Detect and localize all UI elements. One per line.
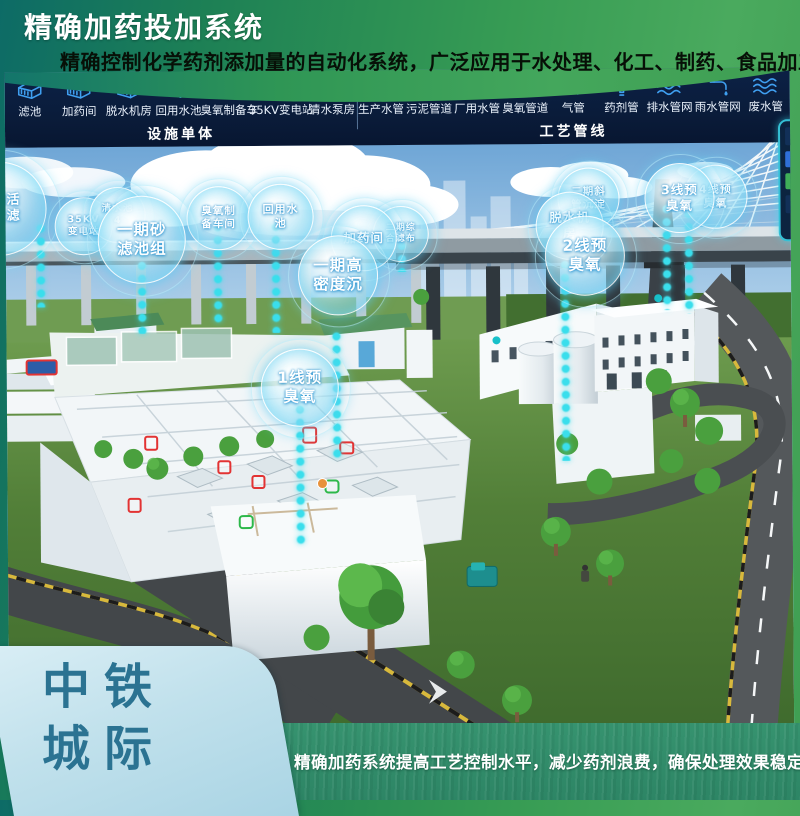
mini-panel-slot	[785, 195, 794, 213]
bubble-label-line: 一期高	[313, 256, 363, 276]
bubble-label-line: 一期活	[5, 192, 21, 209]
bubble-label-line: 备车间	[201, 218, 236, 231]
bubble-line1-pre-ozone[interactable]: 1线预臭氧	[261, 348, 340, 427]
bubble-label-line: 池	[275, 217, 287, 231]
dosing-system-page: { "header": { "title": "精确加药投加系统", "subt…	[0, 0, 800, 800]
bubble-label-line: 臭氧	[283, 388, 316, 408]
bubble-label-line: 臭氧	[666, 198, 693, 214]
bubble-label-line: 回用水	[263, 203, 299, 217]
bubble-label-line: 3线预	[661, 182, 698, 198]
tagline-text: 精确加药系统提高工艺控制水平，减少药剂浪费，确保处理效果稳定	[280, 723, 800, 773]
bubble-label-line: 滤池组	[117, 240, 167, 260]
bubble-line3-pre-ozone[interactable]: 3线预臭氧	[644, 163, 714, 233]
bubble-label-line: 臭氧制	[201, 205, 236, 218]
tagline-banner: 精确加药系统提高工艺控制水平，减少药剂浪费，确保处理效果稳定	[280, 723, 800, 800]
bubble-phase1-high-density-sedimentation[interactable]: 一期高密度沉	[298, 235, 379, 316]
brand-name: 中铁 城际	[42, 656, 166, 780]
brand-line-2: 城际	[42, 718, 166, 780]
bubble-label-line: 密度沉	[313, 275, 363, 295]
bubble-label-line: 性炭滤	[5, 209, 21, 226]
bubble-label-line: 一期砂	[117, 220, 167, 240]
page-title: 精确加药投加系统	[24, 6, 264, 46]
bubble-phase1-sand-filter-group[interactable]: 一期砂滤池组	[97, 195, 186, 284]
brand-line-1: 中铁	[42, 656, 166, 718]
bubble-line2-pre-ozone[interactable]: 2线预臭氧	[545, 215, 626, 296]
right-edge-mini-panel[interactable]	[778, 119, 794, 241]
mini-panel-slot	[785, 127, 794, 145]
bubble-phase1-activated-carbon-filter[interactable]: 一期活性炭滤	[5, 161, 47, 256]
bubble-label-line: 1线预	[277, 368, 322, 388]
page-subtitle: 精确控制化学药剂添加量的自动化系统，广泛应用于水处理、化工、制药、食品加工等行业	[60, 46, 800, 75]
bubble-label-line: 臭氧	[568, 256, 601, 276]
mini-panel-green-block	[785, 173, 794, 189]
mini-panel-blue-block	[785, 151, 794, 167]
bubble-label-line: 2线预	[562, 236, 607, 256]
